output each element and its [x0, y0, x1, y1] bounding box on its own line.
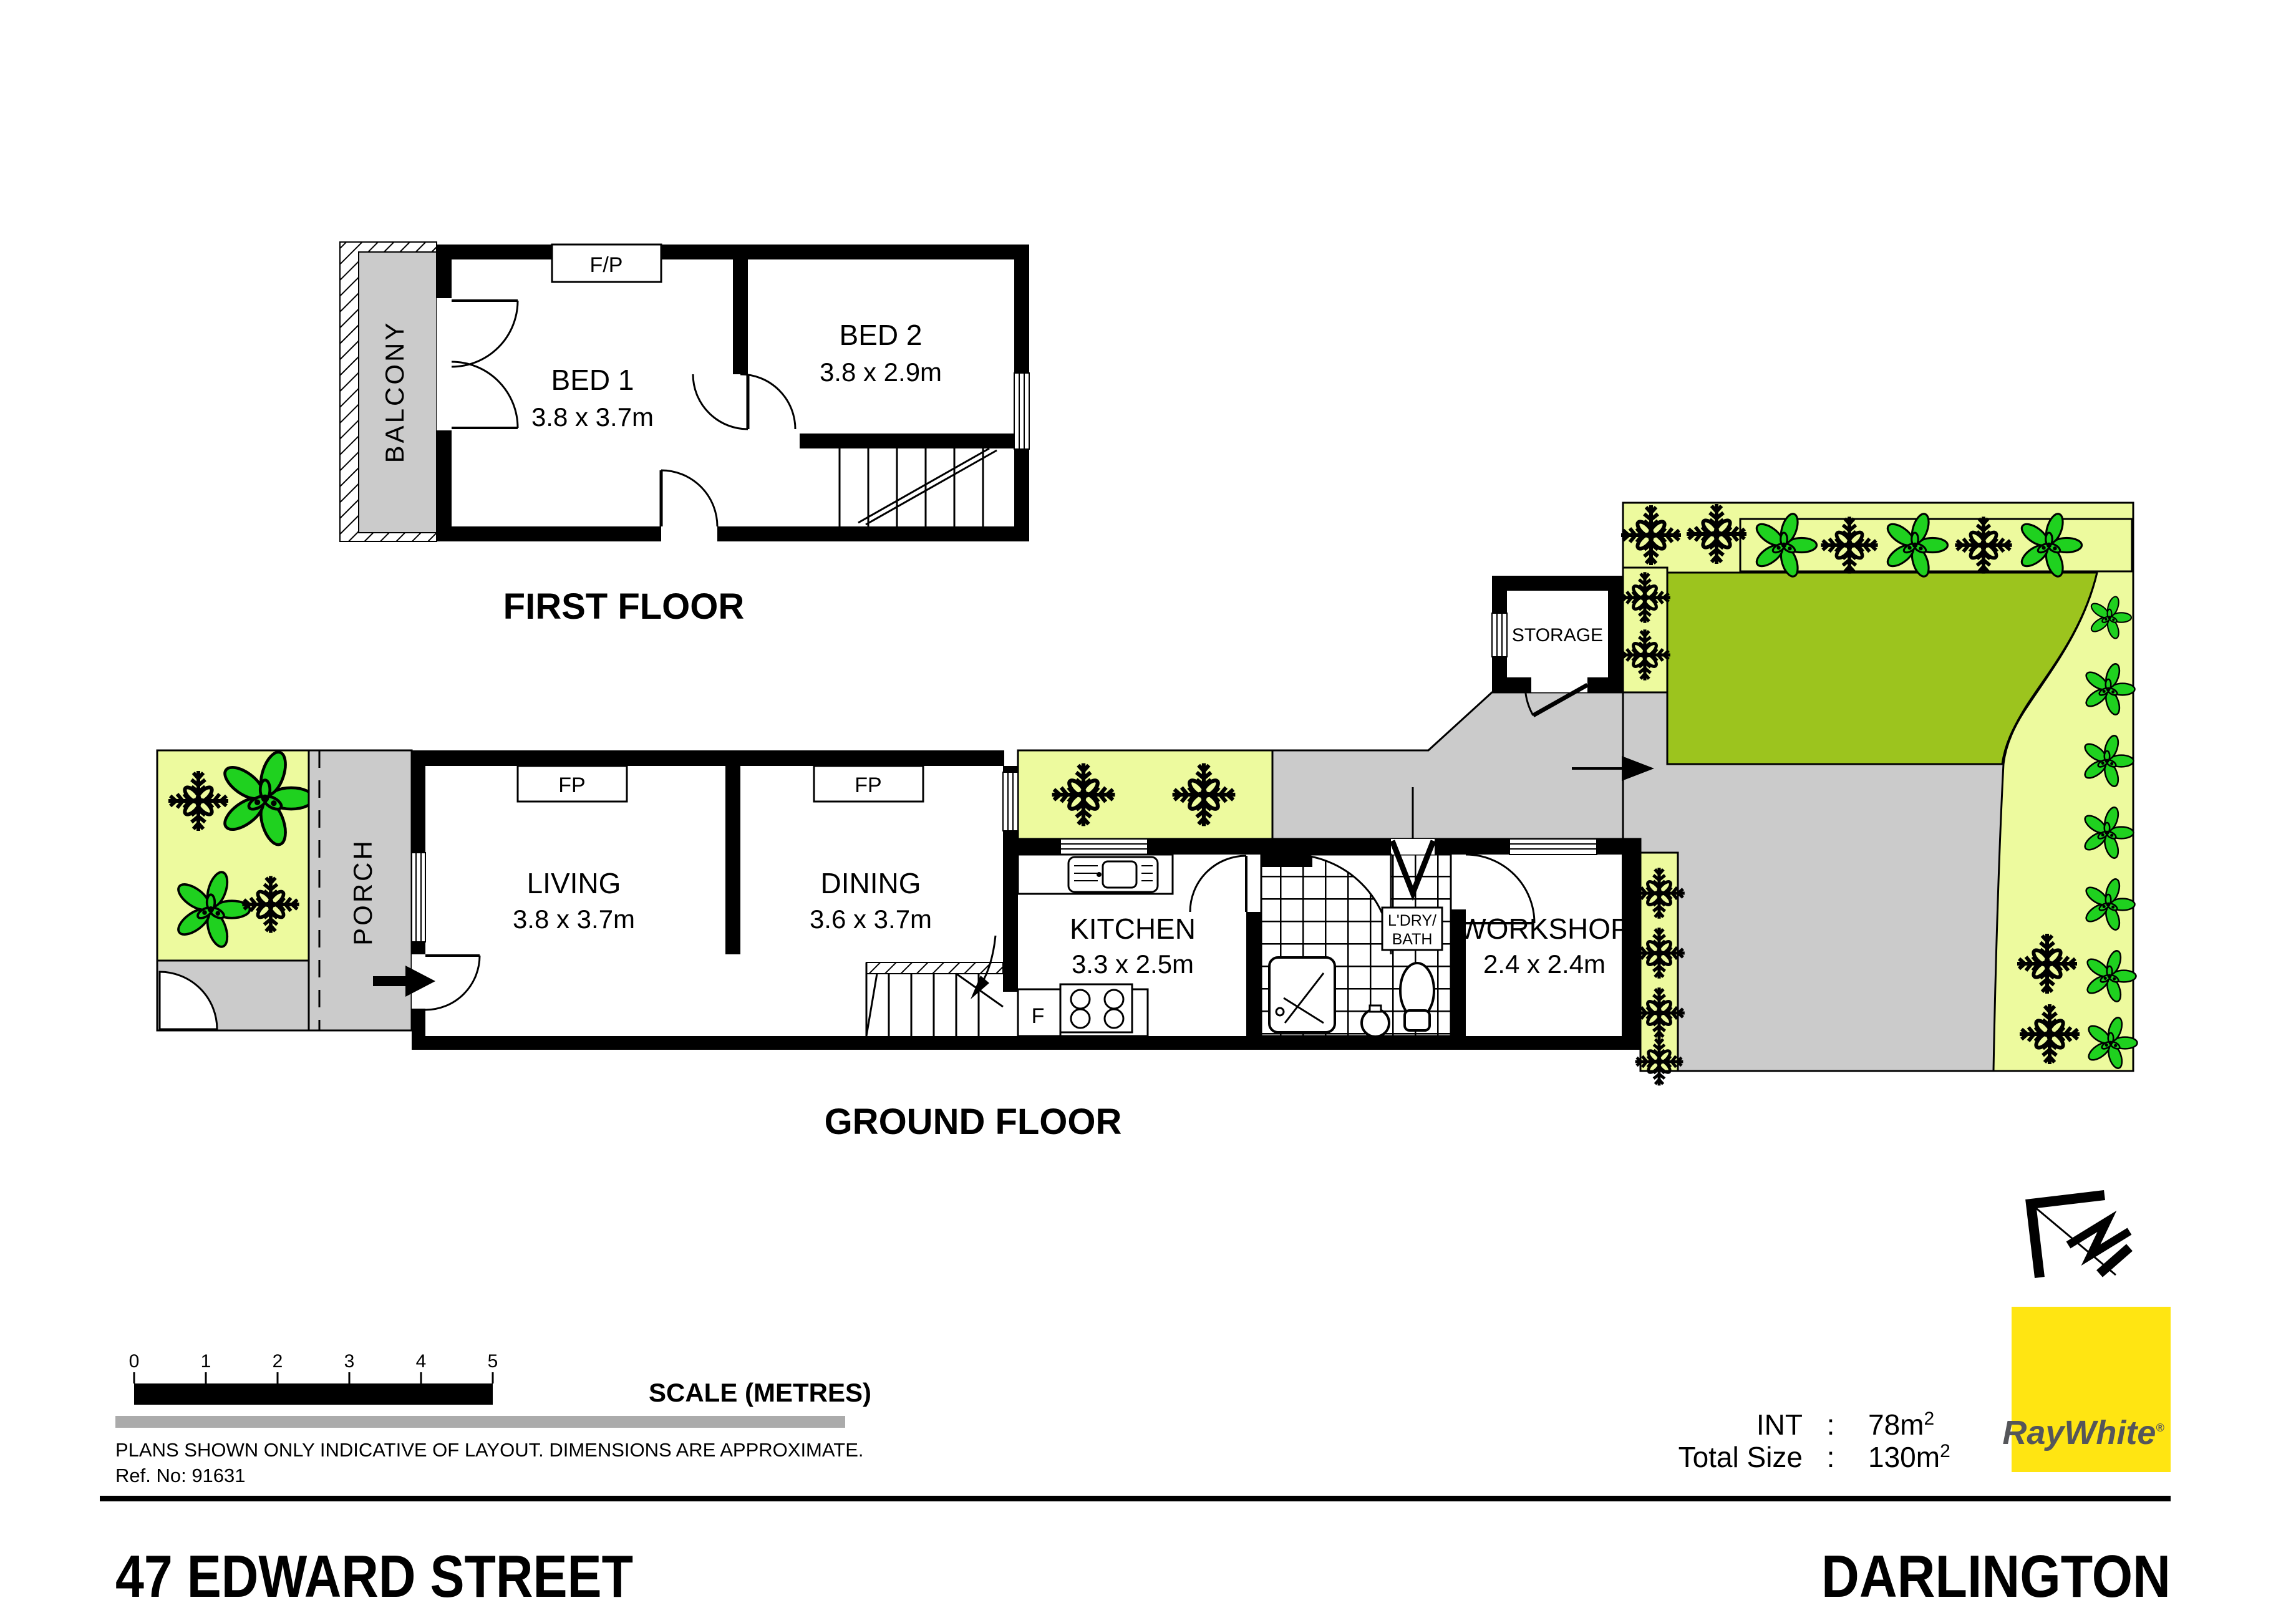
suburb-title: DARLINGTON [1821, 1543, 2171, 1610]
scale-bar-black [134, 1383, 493, 1405]
int-value: 78m2 [1868, 1408, 1934, 1441]
bed2-name: BED 2 [840, 319, 923, 351]
porch-label: PORCH [348, 838, 377, 946]
balcony-label: BALCONY [380, 321, 409, 463]
scale-tick-3: 3 [344, 1351, 355, 1372]
living-dims: 3.8 x 3.7m [513, 904, 635, 934]
bed2-dims: 3.8 x 2.9m [820, 357, 942, 387]
dining-name: DINING [821, 867, 921, 899]
workshop-name: WORKSHOP [1459, 913, 1629, 945]
scale-tick-5: 5 [488, 1351, 498, 1372]
scale-tick-4: 4 [416, 1351, 427, 1372]
living-name: LIVING [527, 867, 621, 899]
workshop-dims: 2.4 x 2.4m [1483, 949, 1606, 979]
kitchen-bath-wall [1246, 912, 1261, 1036]
dining-dims: 3.6 x 3.7m [810, 904, 932, 934]
scale-label: SCALE (METRES) [649, 1378, 871, 1407]
footer-divider-line [100, 1496, 2171, 1501]
brand-logo: RayWhite® [2002, 1307, 2171, 1472]
ground-floor-title: GROUND FLOOR [825, 1102, 1122, 1142]
total-label: Total Size [1678, 1441, 1803, 1473]
ff-divider-wall [733, 259, 748, 374]
divider-gray-bar [115, 1416, 845, 1428]
total-value: 130m2 [1868, 1441, 1950, 1473]
brand-name: RayWhite® [2002, 1414, 2164, 1451]
kitchen-dims: 3.3 x 2.5m [1072, 949, 1194, 979]
int-label: INT [1756, 1408, 1803, 1441]
int-value-text: 78m [1868, 1408, 1924, 1441]
workshop-window [1509, 839, 1597, 855]
fp-label: F/P [590, 253, 623, 277]
storage-label: STORAGE [1512, 625, 1603, 646]
brand-mark: ® [2156, 1422, 2164, 1434]
int-value-sup: 2 [1924, 1408, 1934, 1429]
living-porch-window [412, 853, 425, 942]
scale-tick-2: 2 [273, 1351, 283, 1372]
scale-bar: 0 1 2 3 4 5 SCALE (METRES) PLANS SHOWN O… [115, 1351, 871, 1486]
north-arrow-icon [2031, 1195, 2129, 1277]
disclaimer: PLANS SHOWN ONLY INDICATIVE OF LAYOUT. D… [115, 1439, 863, 1461]
bed1-dims: 3.8 x 3.7m [531, 402, 654, 432]
kitchen-window [1060, 839, 1148, 855]
scale-tick-0: 0 [129, 1351, 140, 1372]
kitchen-sink-counter [1018, 855, 1173, 894]
ldry-bath-label-1: L'DRY/ [1388, 912, 1436, 929]
kitchen-name: KITCHEN [1070, 913, 1196, 945]
kitchen-bath-door [1190, 856, 1246, 912]
total-value-text: 130m [1868, 1441, 1940, 1473]
living-fp-label: FP [558, 773, 585, 797]
bed2-window [1014, 373, 1029, 449]
living-dining-wall [725, 766, 740, 954]
gf-top-wall [412, 750, 1004, 766]
address-title: 47 EDWARD STREET [115, 1543, 633, 1610]
total-value-sup: 2 [1940, 1441, 1950, 1461]
floorplan-page: F/P BALCONY BED 1 3.8 x 3.7m BED 2 3.8 x… [0, 0, 2296, 1623]
bed1-name: BED 1 [551, 364, 634, 396]
scale-tick-1: 1 [201, 1351, 211, 1372]
fridge-label: F [1032, 1004, 1045, 1028]
ldry-bath-label-2: BATH [1392, 931, 1433, 948]
stove-icon [1060, 984, 1132, 1032]
gf-stairs [866, 936, 1003, 1036]
brand-name-text: RayWhite [2002, 1414, 2156, 1451]
first-floor-title: FIRST FLOOR [503, 586, 745, 627]
ref-number: Ref. No: 91631 [115, 1465, 246, 1486]
dining-fp-label: FP [855, 773, 881, 797]
total-colon: : [1827, 1441, 1835, 1473]
dining-side-window [1003, 772, 1018, 831]
area-summary: INT : 78m2 Total Size : 130m2 [1678, 1408, 1950, 1473]
gf-bottom-wall [412, 1036, 1640, 1050]
int-colon: : [1827, 1408, 1835, 1441]
first-floor-plan: F/P BALCONY BED 1 3.8 x 3.7m BED 2 3.8 x… [340, 242, 1029, 627]
